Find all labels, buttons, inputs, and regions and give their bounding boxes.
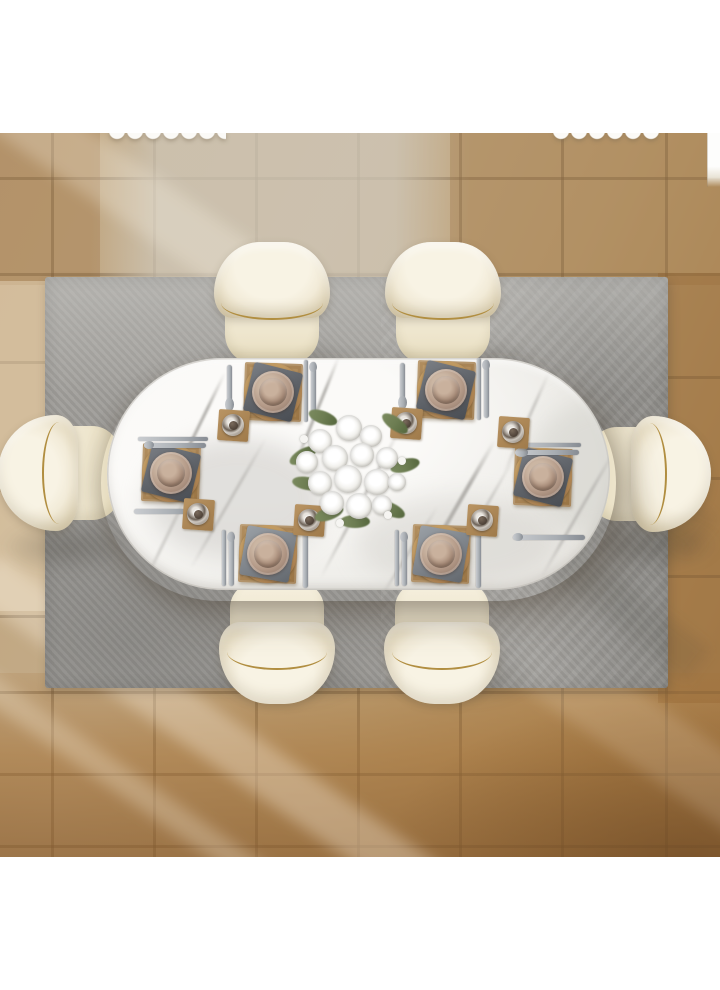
fork (402, 532, 407, 586)
drinking-glass (502, 421, 524, 443)
tile-grout-line (0, 361, 48, 364)
room-photo (0, 133, 720, 857)
rose-bouquet-centerpiece (296, 415, 412, 527)
tile-grout-line (0, 273, 720, 276)
bowl (427, 540, 455, 568)
tile-grout-line (0, 177, 720, 180)
fork (144, 443, 206, 448)
knife (304, 360, 308, 422)
tile-grout-line (0, 615, 48, 618)
rose (296, 451, 318, 473)
tile-grout-line (0, 845, 720, 848)
knife (395, 530, 399, 586)
bowl (254, 540, 282, 568)
fork (513, 535, 585, 540)
bowl (157, 459, 185, 487)
rose (336, 415, 362, 441)
product-photo-canvas (0, 0, 720, 990)
curtain-hem (108, 133, 226, 147)
curtain-edge (707, 133, 720, 187)
rose (376, 447, 398, 469)
gold-trim (227, 634, 327, 670)
tile-grout-line (0, 773, 720, 776)
spoon (400, 363, 405, 409)
bowl (259, 378, 287, 406)
drinking-glass (471, 509, 493, 531)
rose-bud (384, 511, 392, 519)
rose (346, 493, 372, 519)
gold-trim (633, 423, 667, 525)
curtain-hem (552, 133, 660, 147)
spoon (517, 450, 579, 455)
tile-grout-line (0, 691, 720, 694)
fork (229, 532, 234, 586)
rose (364, 469, 390, 495)
rose (334, 465, 362, 493)
knife (222, 530, 226, 586)
rose (320, 491, 344, 515)
bowl (432, 376, 460, 404)
knife (138, 437, 208, 441)
rose (350, 443, 374, 467)
gold-trim (392, 634, 492, 670)
rose-bud (398, 457, 406, 465)
tile-grout-line (664, 376, 720, 379)
rose-bud (336, 519, 344, 527)
bowl (529, 463, 557, 491)
gold-trim (42, 422, 76, 524)
rose-bud (300, 435, 308, 443)
rose (388, 473, 406, 491)
tile-grout-line (664, 575, 720, 578)
